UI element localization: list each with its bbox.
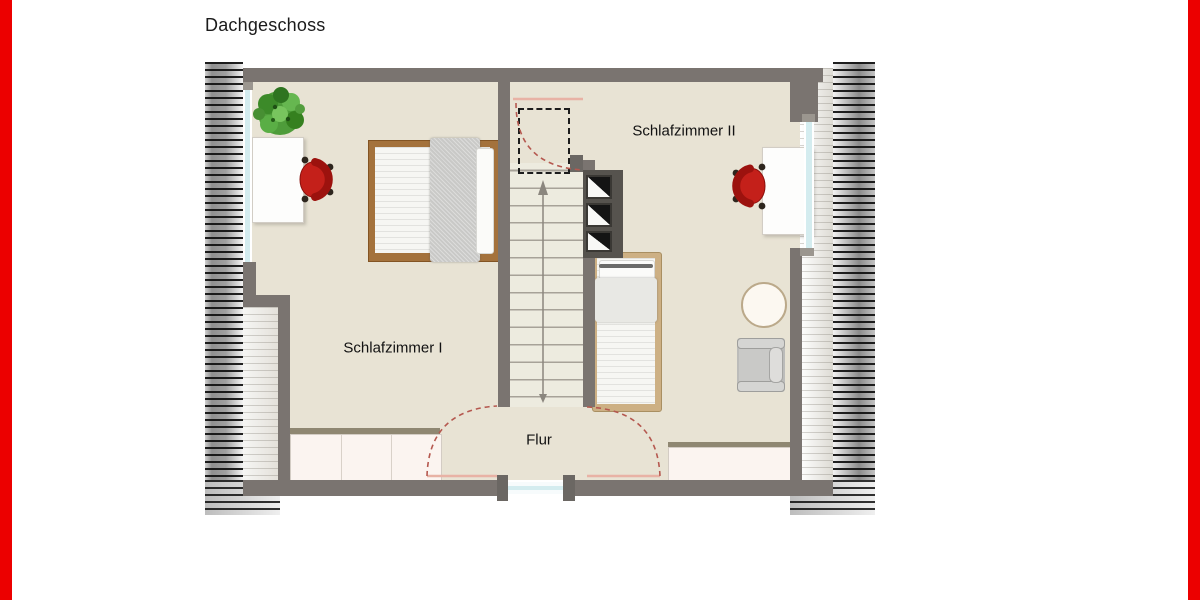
round-table — [741, 282, 787, 328]
double-bed-pillow — [476, 148, 494, 254]
armchair-seat — [739, 349, 770, 381]
wall-bottom-right — [563, 480, 833, 496]
page-title: Dachgeschoss — [205, 15, 325, 36]
sideboard — [668, 447, 797, 482]
window-cap — [802, 114, 815, 122]
roof-slope-strip-left — [243, 300, 278, 480]
chimney-block — [583, 170, 623, 258]
chimney-flue-icon — [586, 203, 612, 227]
wall-bottom-left — [243, 480, 508, 496]
window-right — [804, 122, 814, 248]
room-label-schlafzimmer-1: Schlafzimmer I — [343, 340, 442, 357]
wardrobe-top-edge — [290, 428, 440, 434]
stair-wall-left — [498, 82, 510, 407]
window-cap — [800, 248, 814, 256]
right-red-border — [1188, 0, 1200, 600]
roof-hatch-right — [833, 62, 875, 515]
wall-right-lower — [790, 248, 802, 480]
window-stub — [563, 475, 575, 501]
wall-left-lower — [278, 295, 290, 480]
single-bed-pillow — [599, 260, 655, 280]
double-bed-blanket — [430, 138, 480, 262]
window-stub — [497, 475, 508, 501]
floorplan: Schlafzimmer I Schlafzimmer II Flur — [205, 62, 875, 515]
stair-treads — [510, 163, 583, 407]
window-flur — [508, 480, 563, 496]
wardrobe-divider — [391, 435, 392, 481]
desk-1 — [252, 137, 304, 223]
room-label-schlafzimmer-2: Schlafzimmer II — [632, 123, 735, 140]
floorplan-page: Dachgeschoss — [0, 0, 1200, 600]
chimney-flue-icon — [586, 231, 612, 252]
window-cap — [243, 82, 253, 90]
wardrobe — [290, 434, 442, 482]
wall-stub — [570, 155, 583, 172]
armchair-backrest — [769, 347, 783, 383]
single-bed-pillow-line — [599, 264, 653, 268]
window-left — [243, 90, 252, 262]
sideboard-top-edge — [668, 442, 795, 447]
wall-top — [243, 68, 823, 82]
roof-hatch-left — [205, 62, 243, 515]
wardrobe-divider — [341, 435, 342, 481]
dashed-headroom-outline — [518, 108, 570, 174]
left-red-border — [0, 0, 12, 600]
room-label-flur: Flur — [526, 432, 552, 449]
single-bed-blanket — [595, 278, 657, 322]
chimney-flue-icon — [586, 175, 612, 199]
